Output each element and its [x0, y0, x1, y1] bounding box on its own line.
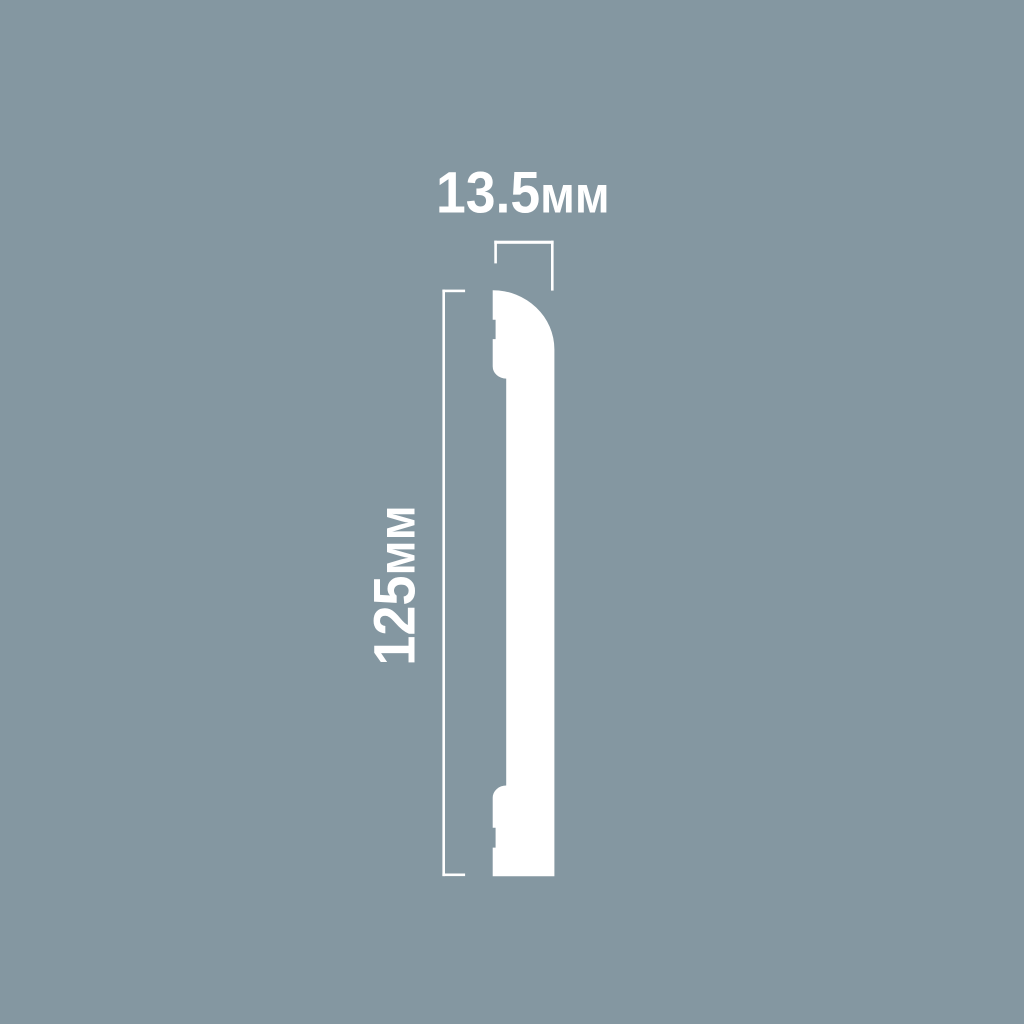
svg-text:125мм: 125мм — [361, 505, 427, 666]
svg-text:13.5мм: 13.5мм — [436, 159, 610, 225]
